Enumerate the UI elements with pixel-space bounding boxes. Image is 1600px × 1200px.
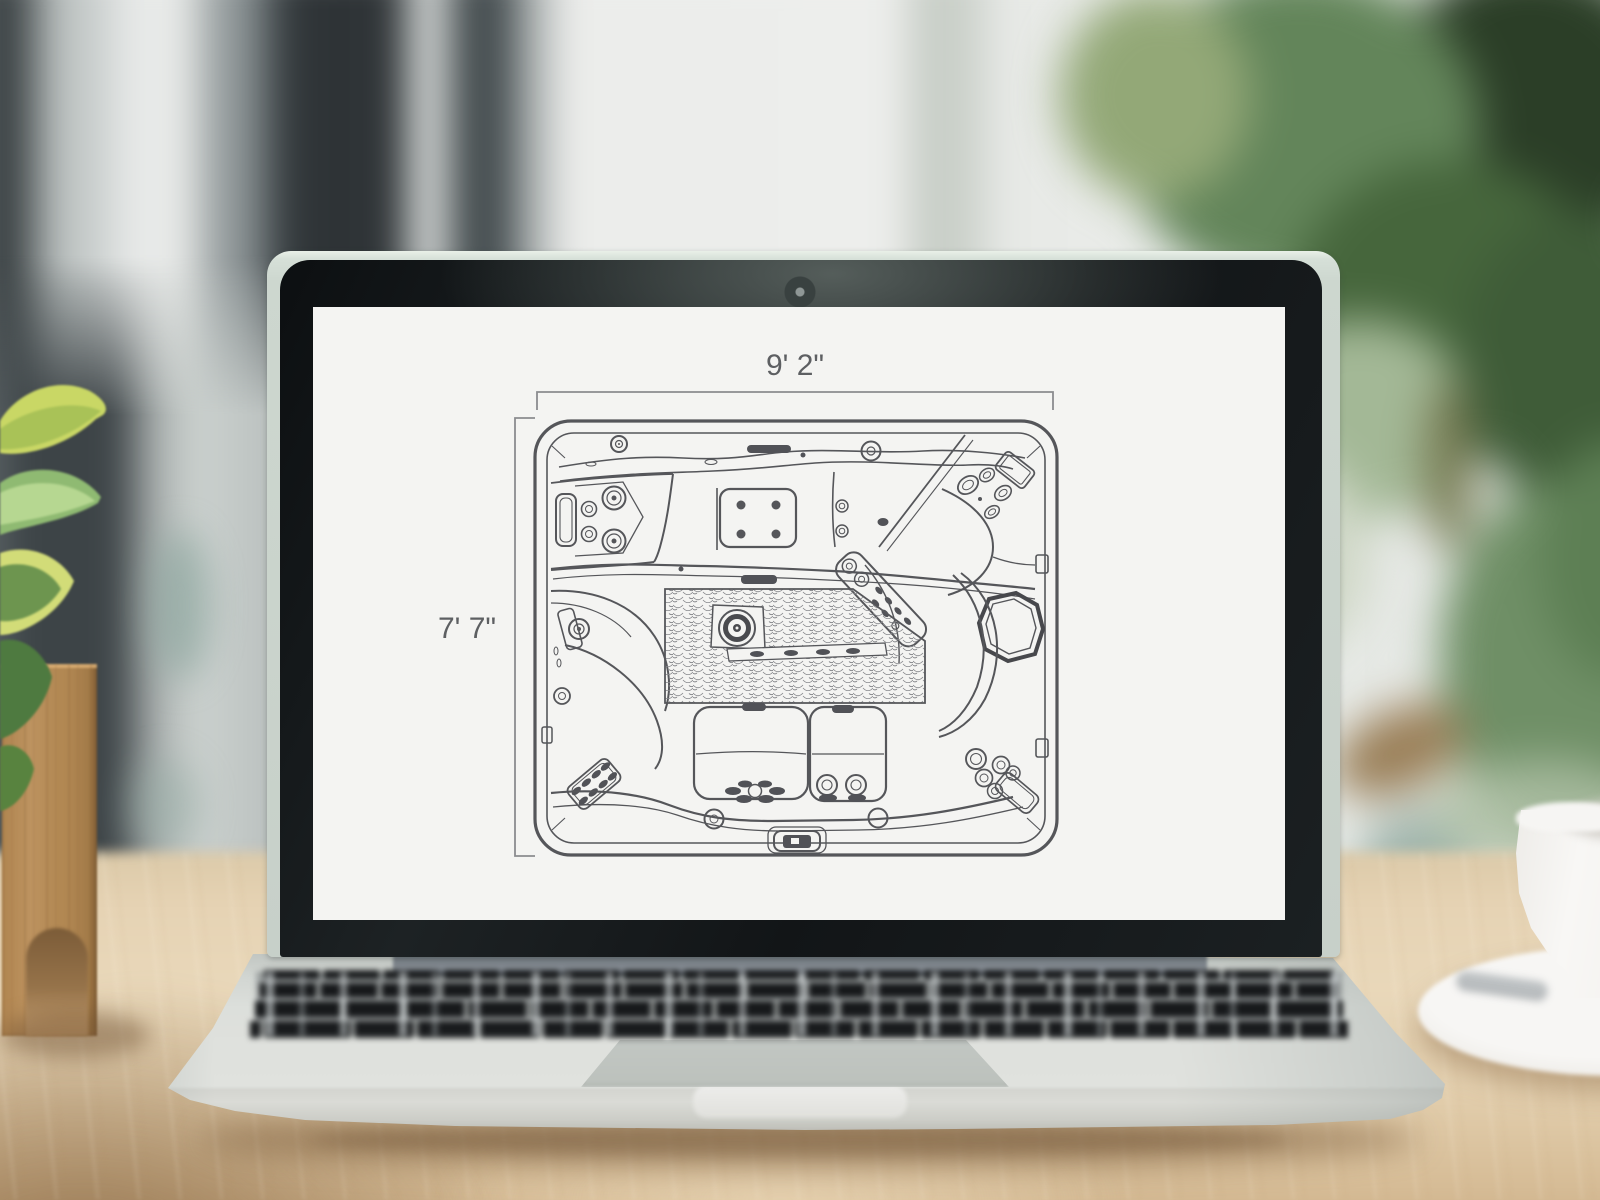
- svg-text:9' 2": 9' 2": [766, 349, 824, 382]
- svg-text:7' 7": 7' 7": [438, 612, 496, 645]
